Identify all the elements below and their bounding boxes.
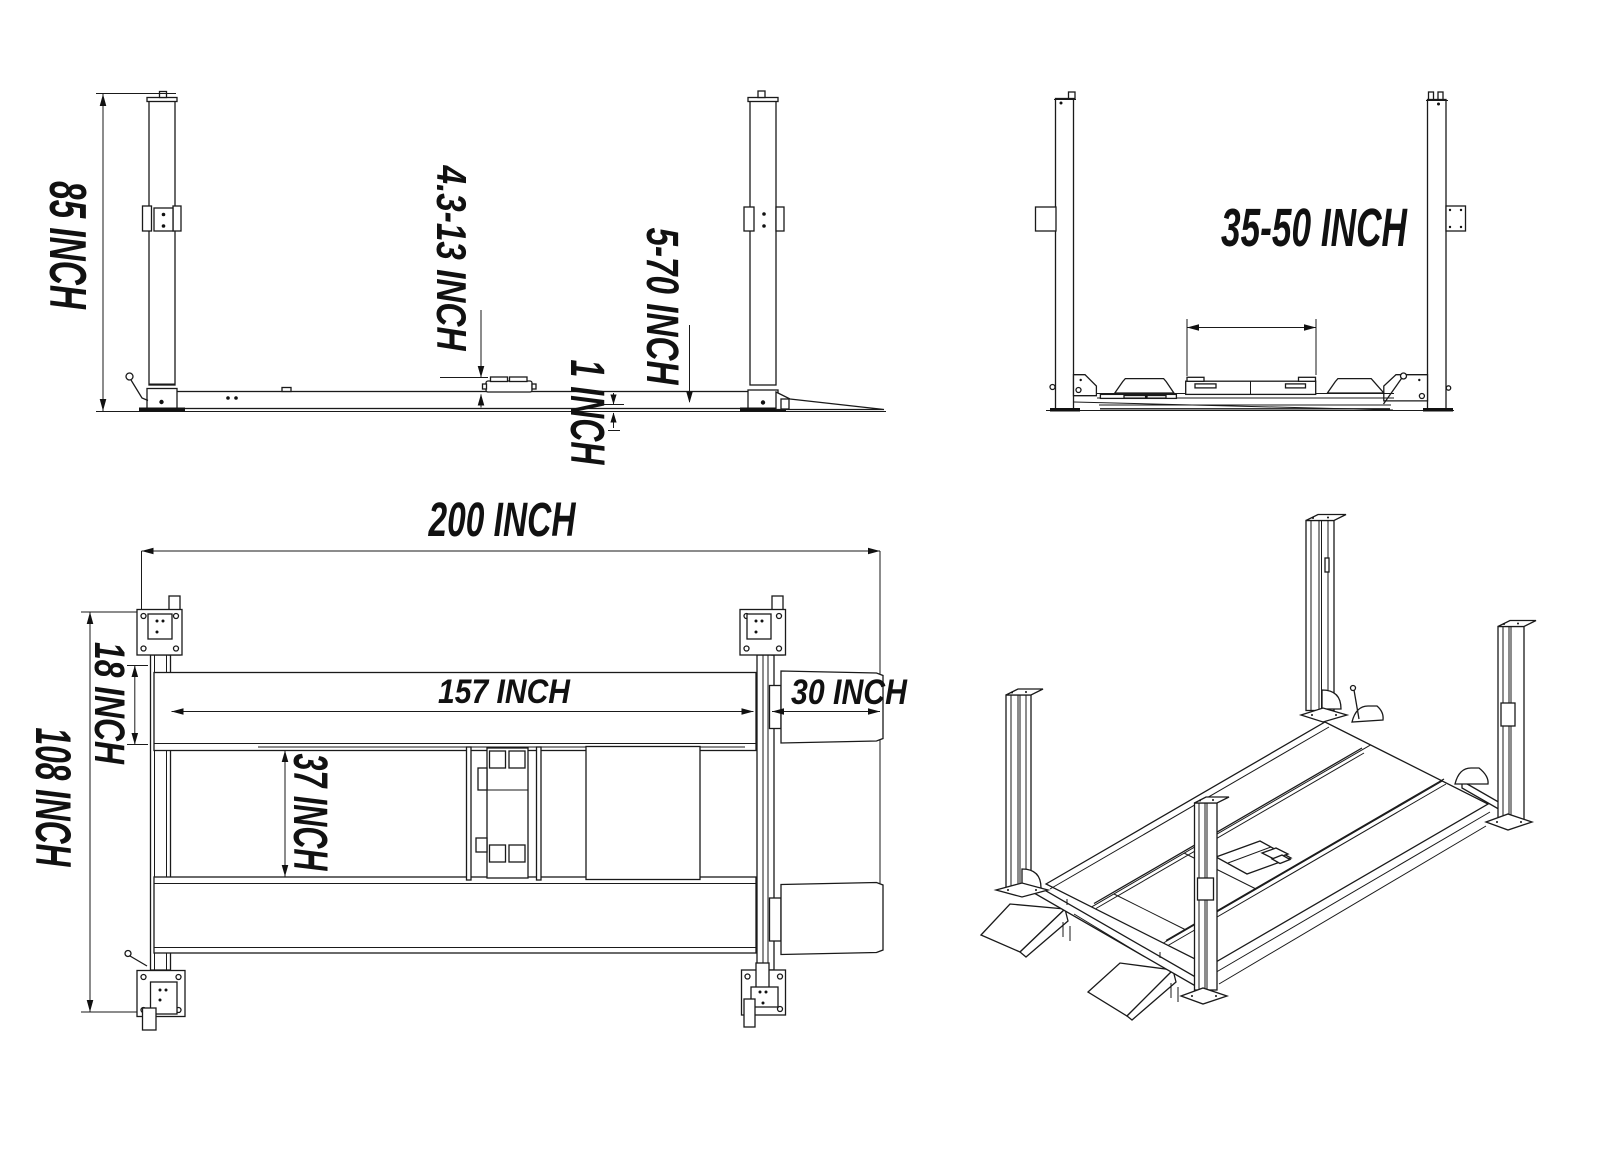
svg-text:18 INCH: 18 INCH xyxy=(85,642,133,765)
svg-text:200 INCH: 200 INCH xyxy=(428,494,577,547)
svg-text:30 INCH: 30 INCH xyxy=(791,673,908,712)
svg-text:35-50 INCH: 35-50 INCH xyxy=(1221,198,1408,258)
svg-text:108 INCH: 108 INCH xyxy=(25,728,81,868)
svg-text:157 INCH: 157 INCH xyxy=(438,673,571,711)
svg-text:85 INCH: 85 INCH xyxy=(38,181,96,310)
svg-text:4.3-13 INCH: 4.3-13 INCH xyxy=(428,165,475,352)
svg-text:37 INCH: 37 INCH xyxy=(283,754,336,872)
svg-text:1 INCH: 1 INCH xyxy=(560,360,613,466)
svg-text:5-70 INCH: 5-70 INCH xyxy=(637,228,688,386)
